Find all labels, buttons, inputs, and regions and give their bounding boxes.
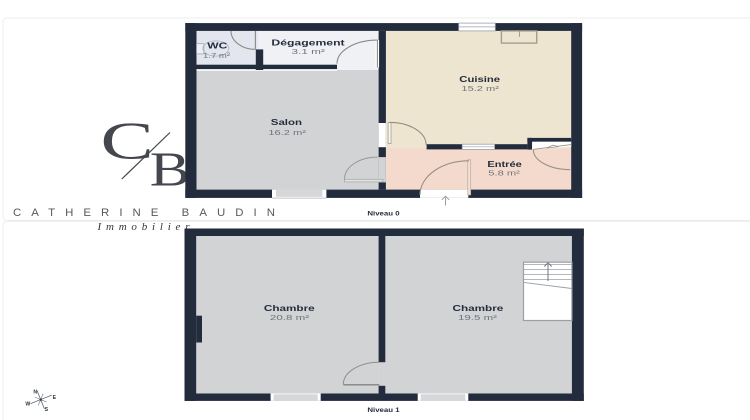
svg-text:E: E: [53, 395, 57, 401]
svg-text:B: B: [150, 142, 190, 196]
svg-text:Chambre: Chambre: [264, 304, 316, 313]
svg-text:Immobilier: Immobilier: [97, 221, 191, 233]
svg-text:3.1 m²: 3.1 m²: [292, 47, 326, 56]
svg-text:19.5 m²: 19.5 m²: [458, 313, 498, 322]
svg-text:W: W: [25, 401, 30, 407]
svg-text:Niveau 0: Niveau 0: [367, 210, 400, 217]
svg-text:Niveau 1: Niveau 1: [367, 407, 400, 414]
svg-text:Cuisine: Cuisine: [459, 75, 501, 84]
svg-text:S: S: [45, 407, 49, 413]
svg-text:20.8 m²: 20.8 m²: [270, 313, 310, 322]
svg-text:Entrée: Entrée: [487, 160, 522, 169]
svg-text:5.8 m²: 5.8 m²: [488, 169, 520, 178]
svg-text:1.7 m²: 1.7 m²: [203, 51, 231, 60]
svg-text:WC: WC: [207, 42, 227, 51]
svg-text:Chambre: Chambre: [453, 304, 505, 313]
svg-text:15.2 m²: 15.2 m²: [461, 84, 499, 93]
svg-text:Salon: Salon: [271, 118, 302, 127]
svg-text:N: N: [33, 389, 37, 395]
svg-text:C: C: [101, 112, 154, 170]
svg-text:16.2 m²: 16.2 m²: [268, 128, 306, 137]
